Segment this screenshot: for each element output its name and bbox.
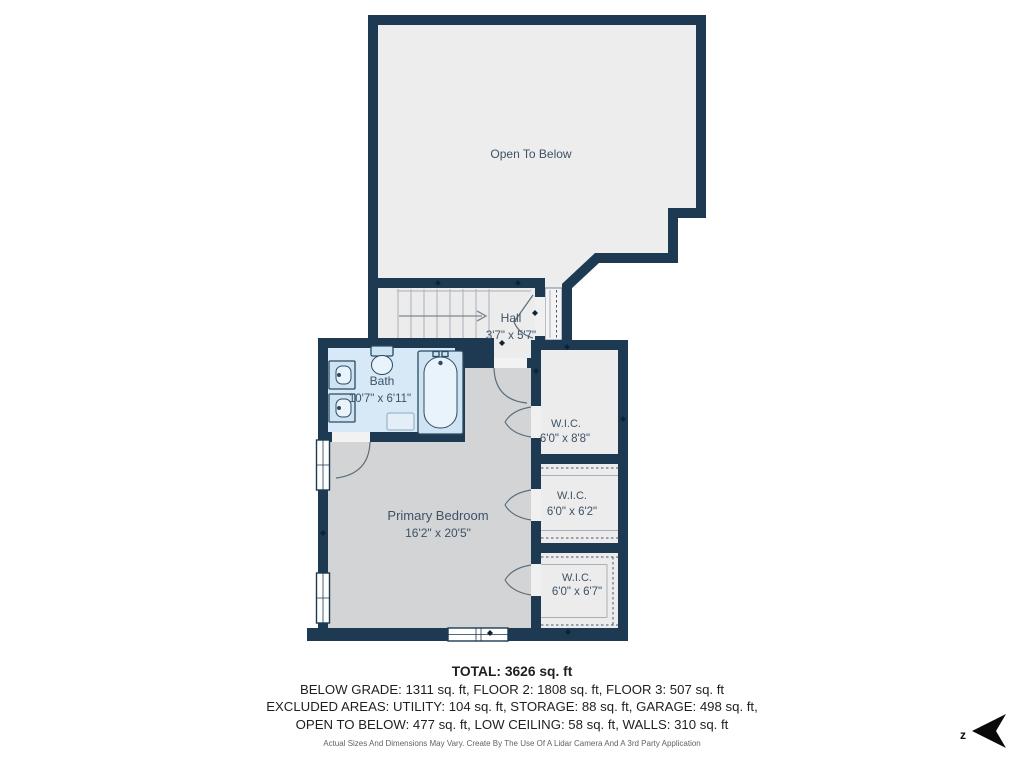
bedroom-window-bottom <box>448 628 508 641</box>
bath-label: Bath <box>370 374 395 388</box>
bath-mat <box>387 413 414 430</box>
summary-excluded-1: EXCLUDED AREAS: UTILITY: 104 sq. ft, STO… <box>0 698 1024 715</box>
wic3-dims: 6'0" x 6'7" <box>552 586 602 598</box>
bedroom-window-left-1 <box>317 440 330 490</box>
toilet <box>371 346 393 375</box>
hall-label: Hall <box>501 311 522 325</box>
wic3-label: W.I.C. <box>562 572 592 584</box>
wic1-dims: 6'0" x 8'8" <box>540 433 590 445</box>
sink-1 <box>329 361 355 389</box>
wic1-label: W.I.C. <box>551 418 581 430</box>
primary-bedroom-label: Primary Bedroom <box>387 508 488 523</box>
floor-plan-page: Open To Below Hall 3'7" x 5'7" Bath 10'7… <box>0 0 1024 768</box>
summary-disclaimer: Actual Sizes And Dimensions May Vary. Cr… <box>0 739 1024 749</box>
bath-dims: 10'7" x 6'11" <box>349 393 411 405</box>
linen-closet-floor <box>545 288 562 340</box>
hall-floor-lower <box>493 343 531 358</box>
open-to-below-label: Open To Below <box>490 147 571 161</box>
area-summary: TOTAL: 3626 sq. ft BELOW GRADE: 1311 sq.… <box>0 663 1024 749</box>
floor-plan: Open To Below Hall 3'7" x 5'7" Bath 10'7… <box>0 0 1024 768</box>
wic2-dims: 6'0" x 6'2" <box>547 506 597 518</box>
summary-total: TOTAL: 3626 sq. ft <box>0 663 1024 681</box>
room-floors <box>323 20 701 633</box>
primary-bedroom-dims: 16'2" x 20'5" <box>405 526 471 540</box>
bedroom-window-left-2 <box>317 573 330 623</box>
summary-floors: BELOW GRADE: 1311 sq. ft, FLOOR 2: 1808 … <box>0 681 1024 698</box>
bathtub <box>418 351 463 434</box>
wic2-label: W.I.C. <box>557 490 587 502</box>
hall-dims: 3'7" x 5'7" <box>486 330 536 342</box>
summary-excluded-2: OPEN TO BELOW: 477 sq. ft, LOW CEILING: … <box>0 716 1024 733</box>
